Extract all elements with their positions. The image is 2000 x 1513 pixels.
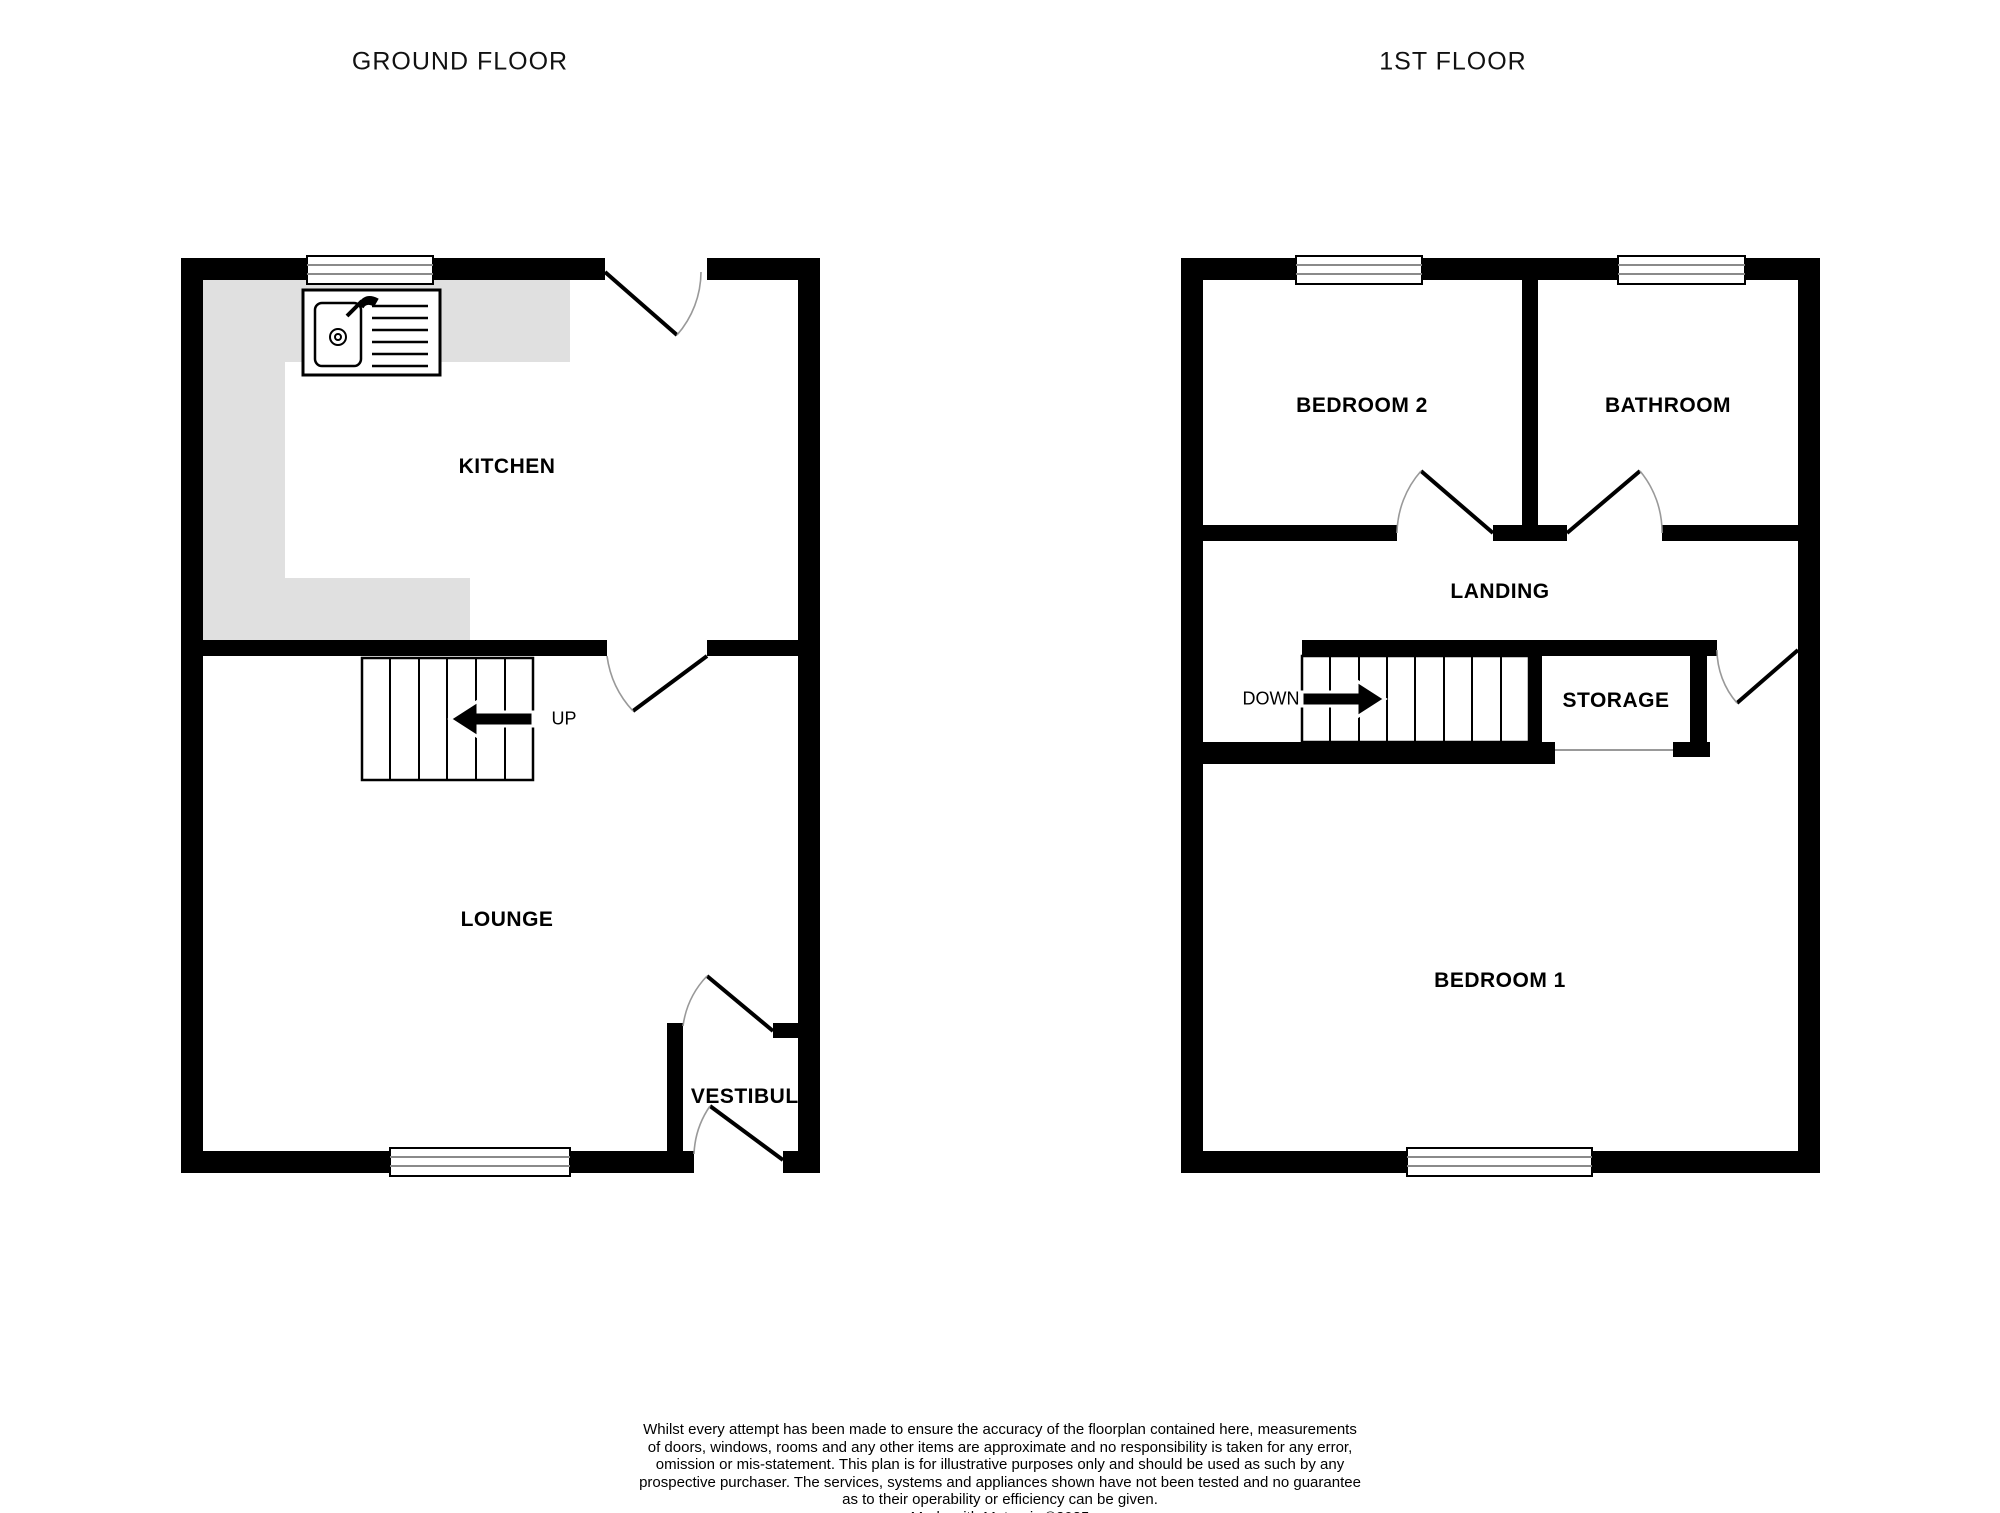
bedroom1-label: BEDROOM 1 — [1434, 969, 1566, 993]
storage-label: STORAGE — [1563, 689, 1670, 713]
disclaimer-text: Whilst every attempt has been made to en… — [639, 1421, 1361, 1513]
vestibule-label: VESTIBULE — [691, 1085, 813, 1109]
up-label: UP — [551, 709, 576, 730]
kitchen-window — [307, 256, 433, 284]
bathroom-door — [1567, 471, 1662, 533]
lounge-label: LOUNGE — [461, 908, 554, 932]
disclaimer-line: as to their operability or efficiency ca… — [639, 1491, 1361, 1509]
bedroom2-label: BEDROOM 2 — [1296, 394, 1428, 418]
down-label: DOWN — [1243, 689, 1300, 710]
floorplan-drawing — [0, 0, 2000, 1513]
kitchen-label: KITCHEN — [459, 455, 556, 479]
landing-label: LANDING — [1450, 580, 1549, 604]
bedroom2-window — [1296, 256, 1422, 284]
front-door — [694, 1106, 783, 1160]
lounge-door — [607, 656, 707, 711]
bathroom-label: BATHROOM — [1605, 394, 1731, 418]
disclaimer-line: omission or mis-statement. This plan is … — [639, 1456, 1361, 1474]
bedroom2-door — [1397, 471, 1493, 533]
disclaimer-line: Whilst every attempt has been made to en… — [639, 1421, 1361, 1439]
disclaimer-line: of doors, windows, rooms and any other i… — [639, 1439, 1361, 1457]
ground-floor-plan — [181, 256, 820, 1176]
disclaimer-credit: Made with Metropix ©2025 — [639, 1509, 1361, 1513]
disclaimer-line: prospective purchaser. The services, sys… — [639, 1474, 1361, 1492]
floorplan-page: GROUND FLOOR 1ST FLOOR KITCHEN LOUNGE VE… — [0, 0, 2000, 1513]
first-stairs — [1302, 656, 1529, 742]
bedroom1-door — [1717, 650, 1798, 703]
ground-floor-title: GROUND FLOOR — [352, 48, 568, 77]
lounge-window — [390, 1148, 570, 1176]
bedroom1-window — [1407, 1148, 1592, 1176]
ground-doors — [605, 272, 783, 1160]
kitchen-sink — [303, 290, 440, 375]
ground-stairs — [362, 658, 533, 780]
bathroom-window — [1618, 256, 1745, 284]
first-floor-title: 1ST FLOOR — [1379, 48, 1526, 77]
kitchen-door — [605, 272, 701, 335]
vestibule-inner-door — [683, 976, 773, 1031]
